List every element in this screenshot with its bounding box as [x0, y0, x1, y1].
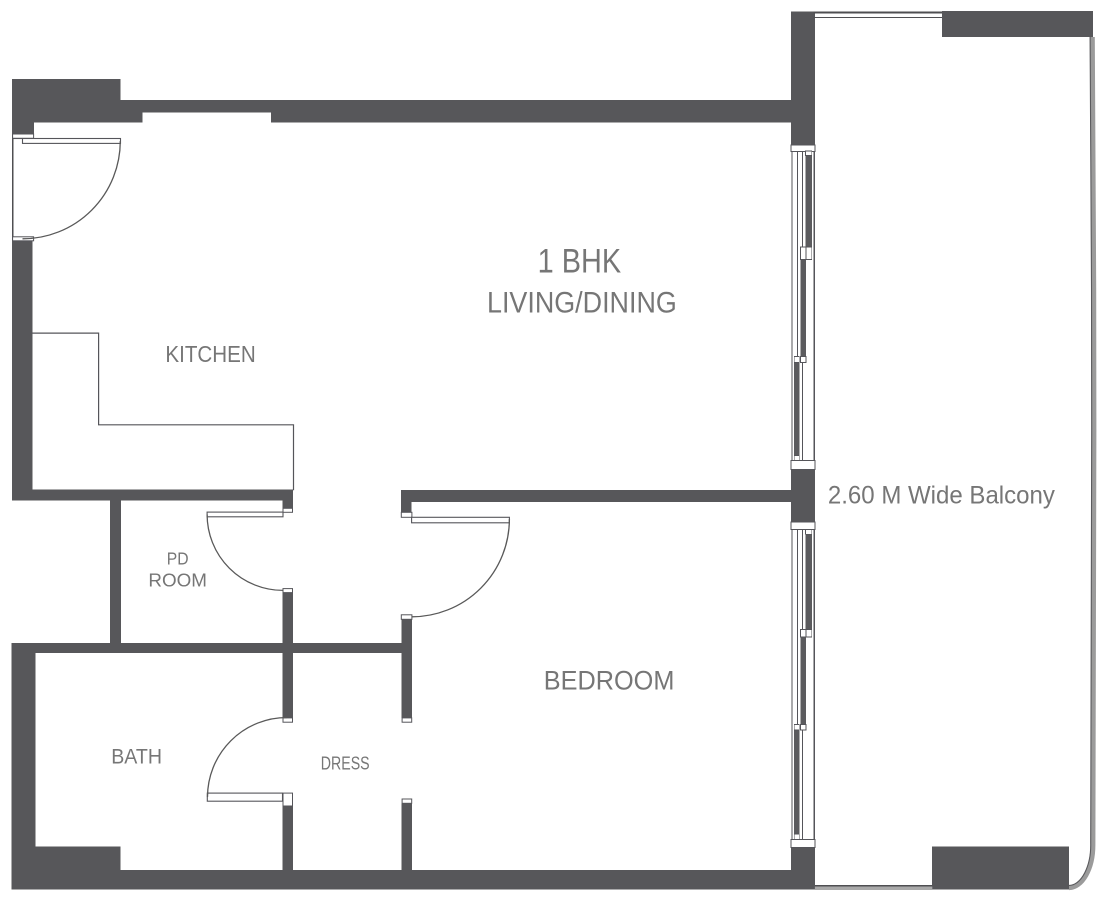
svg-text:KITCHEN: KITCHEN [165, 341, 255, 367]
svg-text:BATH: BATH [111, 744, 162, 768]
svg-text:PD: PD [167, 548, 189, 568]
svg-text:LIVING/DINING: LIVING/DINING [487, 287, 677, 320]
svg-text:BEDROOM: BEDROOM [544, 666, 675, 696]
svg-text:ROOM: ROOM [148, 570, 207, 591]
svg-text:2.60 M Wide Balcony: 2.60 M Wide Balcony [828, 482, 1056, 509]
svg-text:DRESS: DRESS [321, 753, 370, 774]
svg-text:1 BHK: 1 BHK [538, 243, 622, 281]
